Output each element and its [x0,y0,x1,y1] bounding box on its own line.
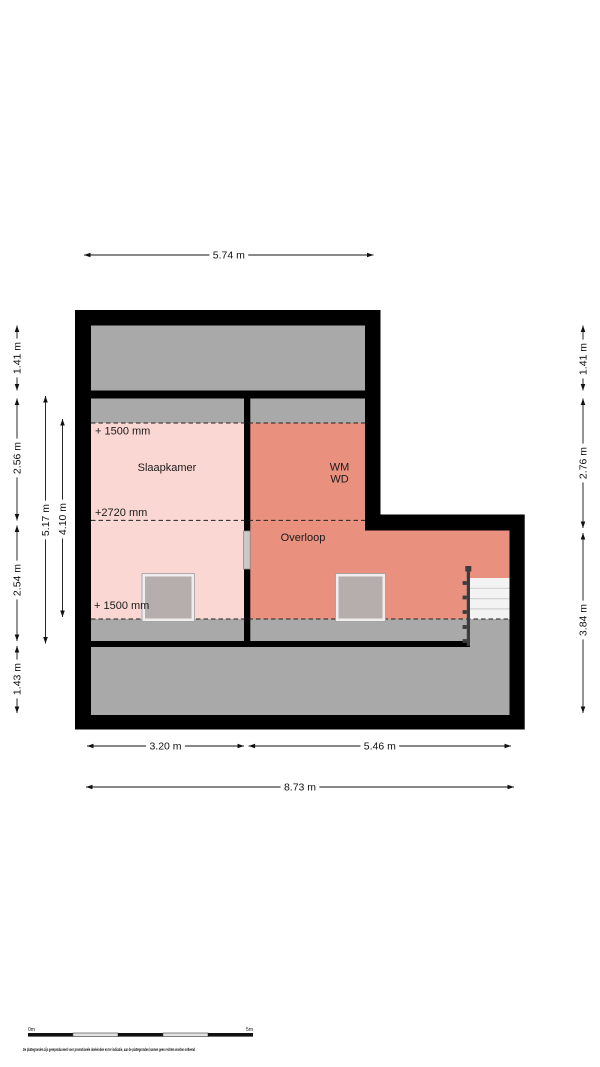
svg-text:1.43 m: 1.43 m [12,663,24,695]
svg-text:2.56 m: 2.56 m [12,442,24,474]
svg-text:Overloop: Overloop [281,532,326,544]
svg-text:2.54 m: 2.54 m [12,564,24,596]
svg-text:5.74 m: 5.74 m [213,250,245,262]
svg-text:+ 1500 mm: + 1500 mm [94,600,149,612]
svg-text:+2720 mm: +2720 mm [95,507,147,519]
svg-text:5.17 m: 5.17 m [40,504,52,536]
svg-text:5m: 5m [246,1027,253,1033]
svg-text:1.41 m: 1.41 m [12,342,24,374]
svg-text:1.41 m: 1.41 m [578,343,590,375]
svg-text:0m: 0m [28,1027,35,1033]
svg-text:3.20 m: 3.20 m [149,741,181,753]
svg-text:4.10 m: 4.10 m [57,503,69,535]
svg-text:3.84 m: 3.84 m [578,604,590,636]
svg-text:2.76 m: 2.76 m [578,447,590,479]
svg-text:+ 1500 mm: + 1500 mm [95,425,150,437]
svg-text:De plattegronden zijn gereprod: De plattegronden zijn gereproduceerd voo… [23,1047,195,1052]
svg-text:WM: WM [330,462,350,474]
svg-text:Slaapkamer: Slaapkamer [138,462,197,474]
svg-text:5.46 m: 5.46 m [364,741,396,753]
svg-text:WD: WD [330,474,348,486]
svg-text:8.73 m: 8.73 m [284,782,316,794]
